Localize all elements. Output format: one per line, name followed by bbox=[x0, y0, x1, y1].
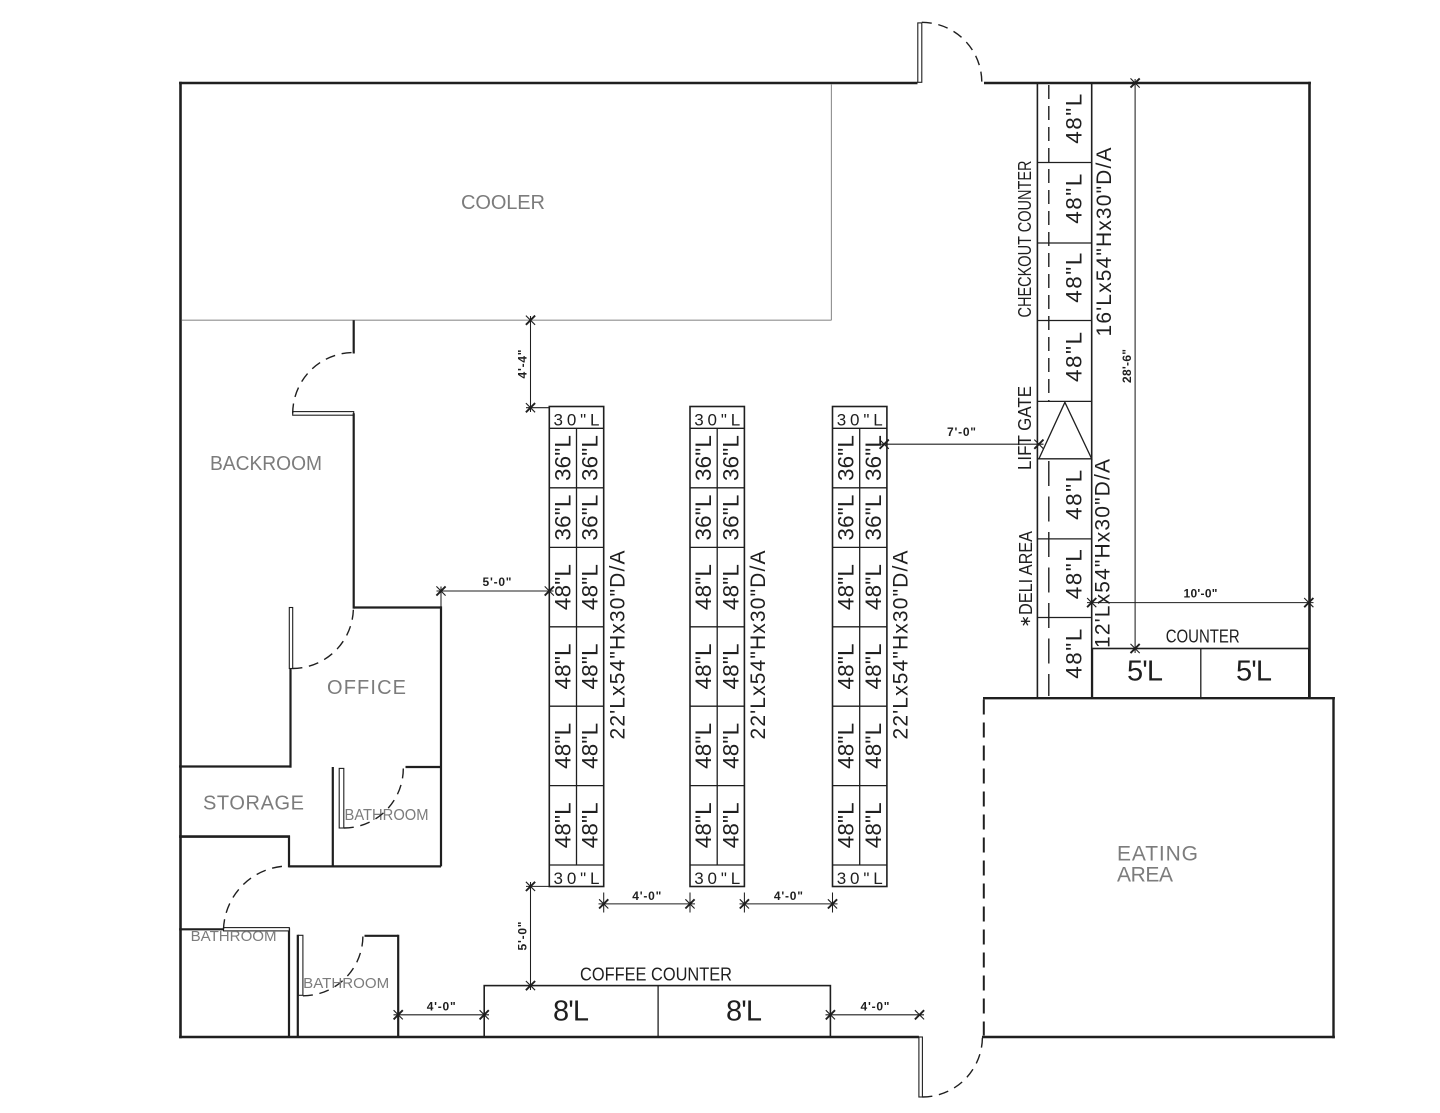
svg-text:48"L: 48"L bbox=[691, 644, 716, 690]
svg-text:48"L: 48"L bbox=[718, 802, 743, 848]
svg-text:4'-0": 4'-0" bbox=[861, 1000, 890, 1014]
svg-text:48"L: 48"L bbox=[550, 802, 575, 848]
svg-text:36"L: 36"L bbox=[550, 435, 575, 481]
svg-text:5'-0": 5'-0" bbox=[483, 575, 512, 589]
svg-text:48"L: 48"L bbox=[578, 723, 603, 769]
svg-text:16'Lx54"Hx30"D/A: 16'Lx54"Hx30"D/A bbox=[1093, 148, 1116, 337]
svg-text:BATHROOM: BATHROOM bbox=[345, 807, 429, 824]
svg-text:48"L: 48"L bbox=[1062, 549, 1087, 599]
svg-text:36"L: 36"L bbox=[834, 435, 859, 481]
svg-text:5'L: 5'L bbox=[1236, 656, 1272, 688]
svg-text:COUNTER: COUNTER bbox=[1166, 626, 1240, 646]
svg-text:48"L: 48"L bbox=[861, 644, 886, 690]
svg-text:48"L: 48"L bbox=[691, 564, 716, 610]
svg-text:48"L: 48"L bbox=[718, 564, 743, 610]
svg-text:8'L: 8'L bbox=[553, 996, 589, 1028]
svg-text:CHECKOUT COUNTER: CHECKOUT COUNTER bbox=[1014, 161, 1035, 318]
svg-text:48"L: 48"L bbox=[861, 564, 886, 610]
svg-text:48"L: 48"L bbox=[1062, 174, 1087, 224]
svg-text:36"L: 36"L bbox=[718, 495, 743, 541]
svg-text:36"L: 36"L bbox=[718, 435, 743, 481]
svg-text:BACKROOM: BACKROOM bbox=[210, 453, 322, 475]
svg-text:36"L: 36"L bbox=[550, 495, 575, 541]
svg-text:DELI AREA: DELI AREA bbox=[1015, 530, 1036, 615]
svg-text:48"L: 48"L bbox=[1062, 253, 1087, 303]
svg-text:10'-0": 10'-0" bbox=[1184, 587, 1218, 601]
svg-text:48"L: 48"L bbox=[861, 802, 886, 848]
svg-text:48"L: 48"L bbox=[718, 644, 743, 690]
svg-text:7'-0": 7'-0" bbox=[947, 425, 976, 439]
svg-text:48"L: 48"L bbox=[550, 723, 575, 769]
svg-text:48"L: 48"L bbox=[718, 723, 743, 769]
svg-text:22'Lx54"Hx30"D/A: 22'Lx54"Hx30"D/A bbox=[890, 551, 913, 740]
svg-text:4'-0": 4'-0" bbox=[632, 889, 661, 903]
svg-text:COFFEE COUNTER: COFFEE COUNTER bbox=[580, 963, 732, 984]
svg-text:28'-6": 28'-6" bbox=[1120, 349, 1134, 383]
svg-text:36"L: 36"L bbox=[578, 495, 603, 541]
svg-text:COOLER: COOLER bbox=[461, 192, 545, 214]
svg-text:48"L: 48"L bbox=[578, 644, 603, 690]
svg-text:STORAGE: STORAGE bbox=[203, 793, 304, 815]
svg-text:48"L: 48"L bbox=[834, 723, 859, 769]
svg-text:22'Lx54"Hx30"D/A: 22'Lx54"Hx30"D/A bbox=[747, 551, 770, 740]
svg-text:36"L: 36"L bbox=[578, 435, 603, 481]
svg-text:LIFT GATE: LIFT GATE bbox=[1014, 386, 1035, 470]
svg-text:12'Lx54"Hx30"D/A: 12'Lx54"Hx30"D/A bbox=[1092, 459, 1115, 648]
svg-text:22'Lx54"Hx30"D/A: 22'Lx54"Hx30"D/A bbox=[606, 551, 629, 740]
svg-text:BATHROOM: BATHROOM bbox=[191, 928, 277, 945]
svg-text:5'L: 5'L bbox=[1127, 656, 1163, 688]
svg-text:AREA: AREA bbox=[1117, 864, 1173, 887]
svg-text:48"L: 48"L bbox=[1062, 94, 1087, 144]
svg-text:48"L: 48"L bbox=[1062, 332, 1087, 382]
svg-text:36"L: 36"L bbox=[691, 495, 716, 541]
svg-text:4'-0": 4'-0" bbox=[774, 889, 803, 903]
svg-text:48"L: 48"L bbox=[578, 802, 603, 848]
svg-text:48"L: 48"L bbox=[1062, 629, 1087, 679]
svg-text:8'L: 8'L bbox=[726, 996, 762, 1028]
svg-text:OFFICE: OFFICE bbox=[327, 677, 406, 699]
svg-text:5'-0": 5'-0" bbox=[516, 922, 530, 951]
svg-text:48"L: 48"L bbox=[691, 802, 716, 848]
svg-text:BATHROOM: BATHROOM bbox=[303, 975, 389, 992]
svg-text:36"L: 36"L bbox=[861, 495, 886, 541]
svg-text:4'-4": 4'-4" bbox=[516, 350, 530, 379]
svg-text:48"L: 48"L bbox=[691, 723, 716, 769]
svg-text:4'-0": 4'-0" bbox=[427, 1000, 456, 1014]
svg-text:48"L: 48"L bbox=[1062, 470, 1087, 520]
svg-text:48"L: 48"L bbox=[550, 644, 575, 690]
svg-text:36"L: 36"L bbox=[691, 435, 716, 481]
svg-text:36"L: 36"L bbox=[834, 495, 859, 541]
svg-text:48"L: 48"L bbox=[834, 564, 859, 610]
svg-text:48"L: 48"L bbox=[861, 723, 886, 769]
svg-text:EATING: EATING bbox=[1117, 843, 1198, 866]
svg-text:48"L: 48"L bbox=[834, 644, 859, 690]
svg-text:48"L: 48"L bbox=[578, 564, 603, 610]
svg-text:48"L: 48"L bbox=[834, 802, 859, 848]
